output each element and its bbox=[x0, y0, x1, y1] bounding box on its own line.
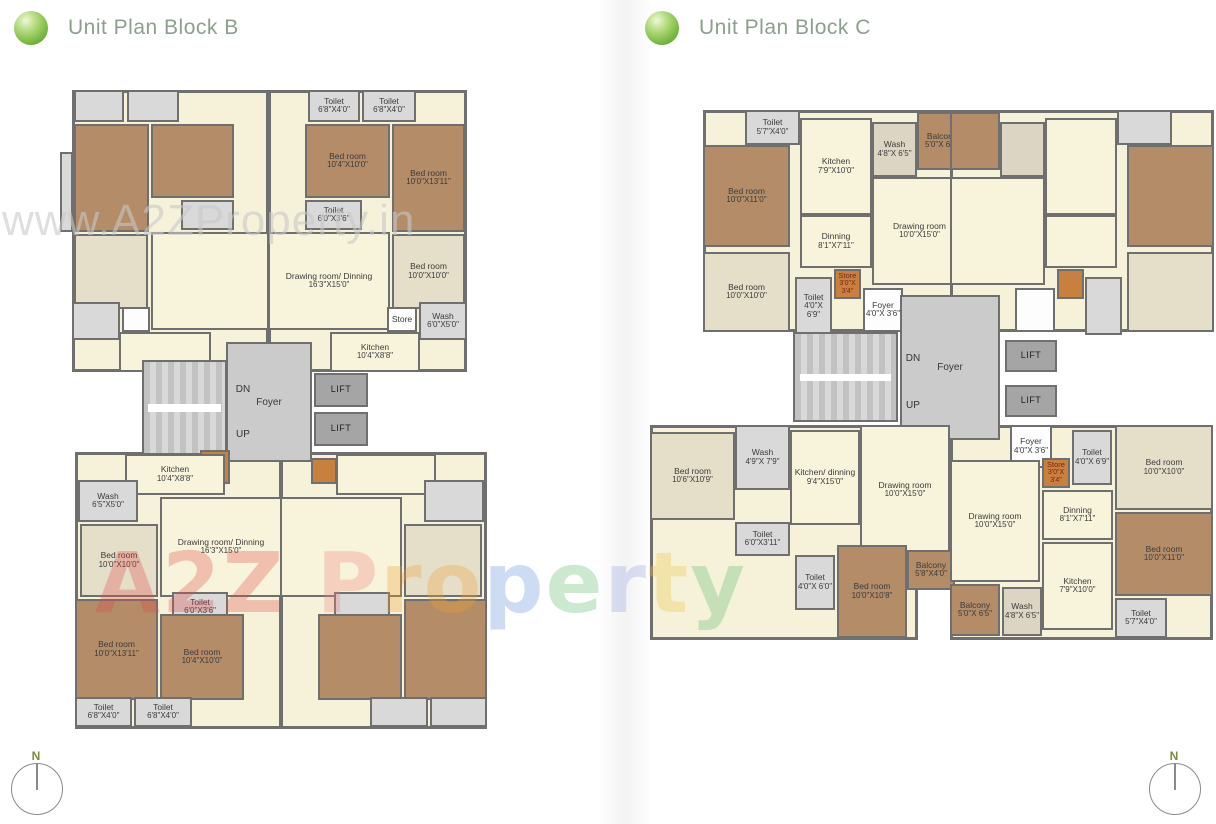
stairs bbox=[142, 360, 227, 455]
block-c-title: Unit Plan Block C bbox=[699, 16, 871, 40]
bedroom bbox=[1127, 145, 1214, 247]
foyer-small bbox=[1015, 288, 1055, 332]
up-label: UP bbox=[900, 399, 926, 412]
toilet-room: Toilet6'0"X3'6" bbox=[305, 200, 362, 230]
bedroom: Bed room10'0"X11'0" bbox=[703, 145, 790, 247]
store-room bbox=[1057, 269, 1084, 299]
green-sphere-icon bbox=[14, 11, 48, 45]
compass-right: N bbox=[1146, 750, 1206, 818]
bedroom: Bed room10'0"X10'0" bbox=[1115, 425, 1213, 510]
toilet-room: Toilet4'0"X 6'9" bbox=[795, 277, 832, 335]
bedroom: Bed room10'0"X10'0" bbox=[80, 524, 158, 597]
bedroom bbox=[1127, 252, 1214, 332]
toilet-room: Toilet6'8"X4'0" bbox=[134, 697, 192, 727]
drawing-room: Drawing room/ Dinning16'3"X15'0" bbox=[160, 497, 282, 597]
toilet-room: Toilet6'0"X3'11" bbox=[735, 522, 790, 556]
dinning: Dinning8'1"X7'11" bbox=[800, 215, 872, 268]
compass-needle-icon bbox=[1174, 764, 1176, 790]
bedroom: Bed room10'0"X10'0" bbox=[703, 252, 790, 332]
up-label: UP bbox=[230, 428, 256, 441]
toilet-room bbox=[127, 90, 179, 122]
compass-needle-icon bbox=[36, 764, 38, 790]
bedroom: Bed room10'6"X10'9" bbox=[650, 432, 735, 520]
toilet-room: Toilet4'0"X 6'9" bbox=[1072, 430, 1112, 485]
bedroom bbox=[404, 524, 482, 597]
foyer: Foyer bbox=[900, 295, 1000, 440]
lift: LIFT bbox=[1005, 385, 1057, 417]
toilet-room: Toilet6'8"X4'0" bbox=[362, 90, 416, 122]
kitchen: Kitchen10'4"X8'8" bbox=[330, 332, 420, 372]
bedroom bbox=[318, 614, 402, 700]
wash-room: Wash4'9"X 7'9" bbox=[735, 425, 790, 490]
bedroom: Bed room10'0"X11'0" bbox=[1115, 512, 1213, 596]
wash-room bbox=[72, 302, 120, 340]
compass-north-label: N bbox=[1170, 749, 1179, 763]
drawing-room: Drawing room10'0"X15'0" bbox=[860, 425, 950, 555]
store-room: Store bbox=[387, 307, 417, 332]
block-c-header: Unit Plan Block C bbox=[645, 6, 871, 50]
wash-room: Wash4'8"X 6'5" bbox=[1002, 587, 1042, 636]
store-room: Store3'0"X 3'4" bbox=[834, 269, 861, 299]
watermark-letter: e bbox=[546, 534, 605, 632]
toilet-room: Toilet6'8"X4'0" bbox=[75, 697, 132, 727]
lift: LIFT bbox=[1005, 340, 1057, 372]
store-room bbox=[122, 307, 150, 332]
stairs bbox=[793, 332, 898, 422]
wash-room bbox=[424, 480, 484, 522]
bedroom bbox=[151, 124, 234, 198]
balcony: Balcony5'8"X4'0" bbox=[907, 550, 955, 590]
toilet-room bbox=[1117, 110, 1172, 145]
dinning: Dinning8'1"X7'11" bbox=[1042, 490, 1113, 540]
bedroom: Bed room10'0"X13'11" bbox=[392, 124, 465, 232]
brochure-page: Unit Plan Block B Unit Plan Block C Toil… bbox=[0, 0, 1216, 824]
floor-plan-block-c: Toilet5'7"X4'0"Kitchen7'9"X10'0"Wash4'8"… bbox=[645, 100, 1216, 655]
store-room bbox=[311, 458, 337, 484]
foyer-small: Foyer4'0"X 3'6" bbox=[863, 288, 903, 332]
dinning bbox=[1045, 215, 1117, 268]
bedroom bbox=[74, 124, 149, 232]
wash-room: Wash4'8"X 6'5" bbox=[872, 122, 917, 177]
bedroom: Bed room10'0"X10'0" bbox=[392, 234, 465, 309]
drawing-room bbox=[280, 497, 402, 597]
store-room: Store3'0"X 3'4" bbox=[1042, 458, 1070, 488]
page-fold bbox=[598, 0, 652, 824]
kitchen: Kitchen/ dinning9'4"X15'0" bbox=[790, 430, 860, 525]
kitchen: Kitchen7'9"X10'0" bbox=[800, 118, 872, 215]
dn-label: DN bbox=[900, 352, 926, 365]
bedroom: Bed room10'4"X10'0" bbox=[305, 124, 390, 198]
toilet-room bbox=[430, 697, 487, 727]
compass-north-label: N bbox=[32, 749, 41, 763]
drawing-room: Drawing room10'0"X15'0" bbox=[950, 460, 1040, 582]
bedroom bbox=[404, 599, 487, 700]
drawing-room bbox=[950, 177, 1045, 285]
toilet-room: Toilet4'0"X 6'0" bbox=[795, 555, 835, 610]
lift: LIFT bbox=[314, 412, 368, 446]
toilet-room: Toilet6'8"X4'0" bbox=[308, 90, 360, 122]
toilet-room: Toilet5'7"X4'0" bbox=[745, 110, 800, 145]
toilet-room bbox=[1085, 277, 1122, 335]
block-b-title: Unit Plan Block B bbox=[68, 16, 239, 40]
balcony bbox=[60, 152, 73, 232]
bedroom: Bed room10'0"X13'11" bbox=[75, 599, 158, 700]
lift: LIFT bbox=[314, 373, 368, 407]
bedroom: Bed room10'4"X10'0" bbox=[160, 614, 244, 700]
toilet-room bbox=[181, 200, 234, 230]
drawing-room: Drawing room/ Dinning16'3"X15'0" bbox=[268, 232, 390, 330]
kitchen: Kitchen10'4"X8'8" bbox=[125, 454, 225, 495]
toilet-room: Toilet5'7"X4'0" bbox=[1115, 598, 1167, 638]
balcony bbox=[950, 112, 1000, 170]
dn-label: DN bbox=[230, 383, 256, 396]
wash-room bbox=[1000, 122, 1045, 177]
compass-left: N bbox=[8, 750, 68, 818]
drawing-room bbox=[151, 232, 269, 330]
bedroom: Bed room10'0"X10'8" bbox=[837, 545, 907, 638]
balcony: Balcony5'0"X 6'5" bbox=[950, 584, 1000, 636]
foyer: Foyer bbox=[226, 342, 312, 462]
wash-room: Wash6'0"X5'0" bbox=[419, 302, 467, 340]
wash-room: Wash6'5"X5'0" bbox=[78, 480, 138, 522]
kitchen bbox=[1045, 118, 1117, 215]
floor-plan-block-b: Toilet6'8"X4'0"Toilet6'8"X4'0"Bed room10… bbox=[60, 85, 530, 745]
block-b-header: Unit Plan Block B bbox=[14, 6, 239, 50]
kitchen bbox=[336, 454, 436, 495]
bedroom bbox=[74, 234, 148, 309]
kitchen: Kitchen7'9"X10'0" bbox=[1042, 542, 1113, 630]
toilet-room bbox=[370, 697, 428, 727]
toilet-room bbox=[74, 90, 124, 122]
